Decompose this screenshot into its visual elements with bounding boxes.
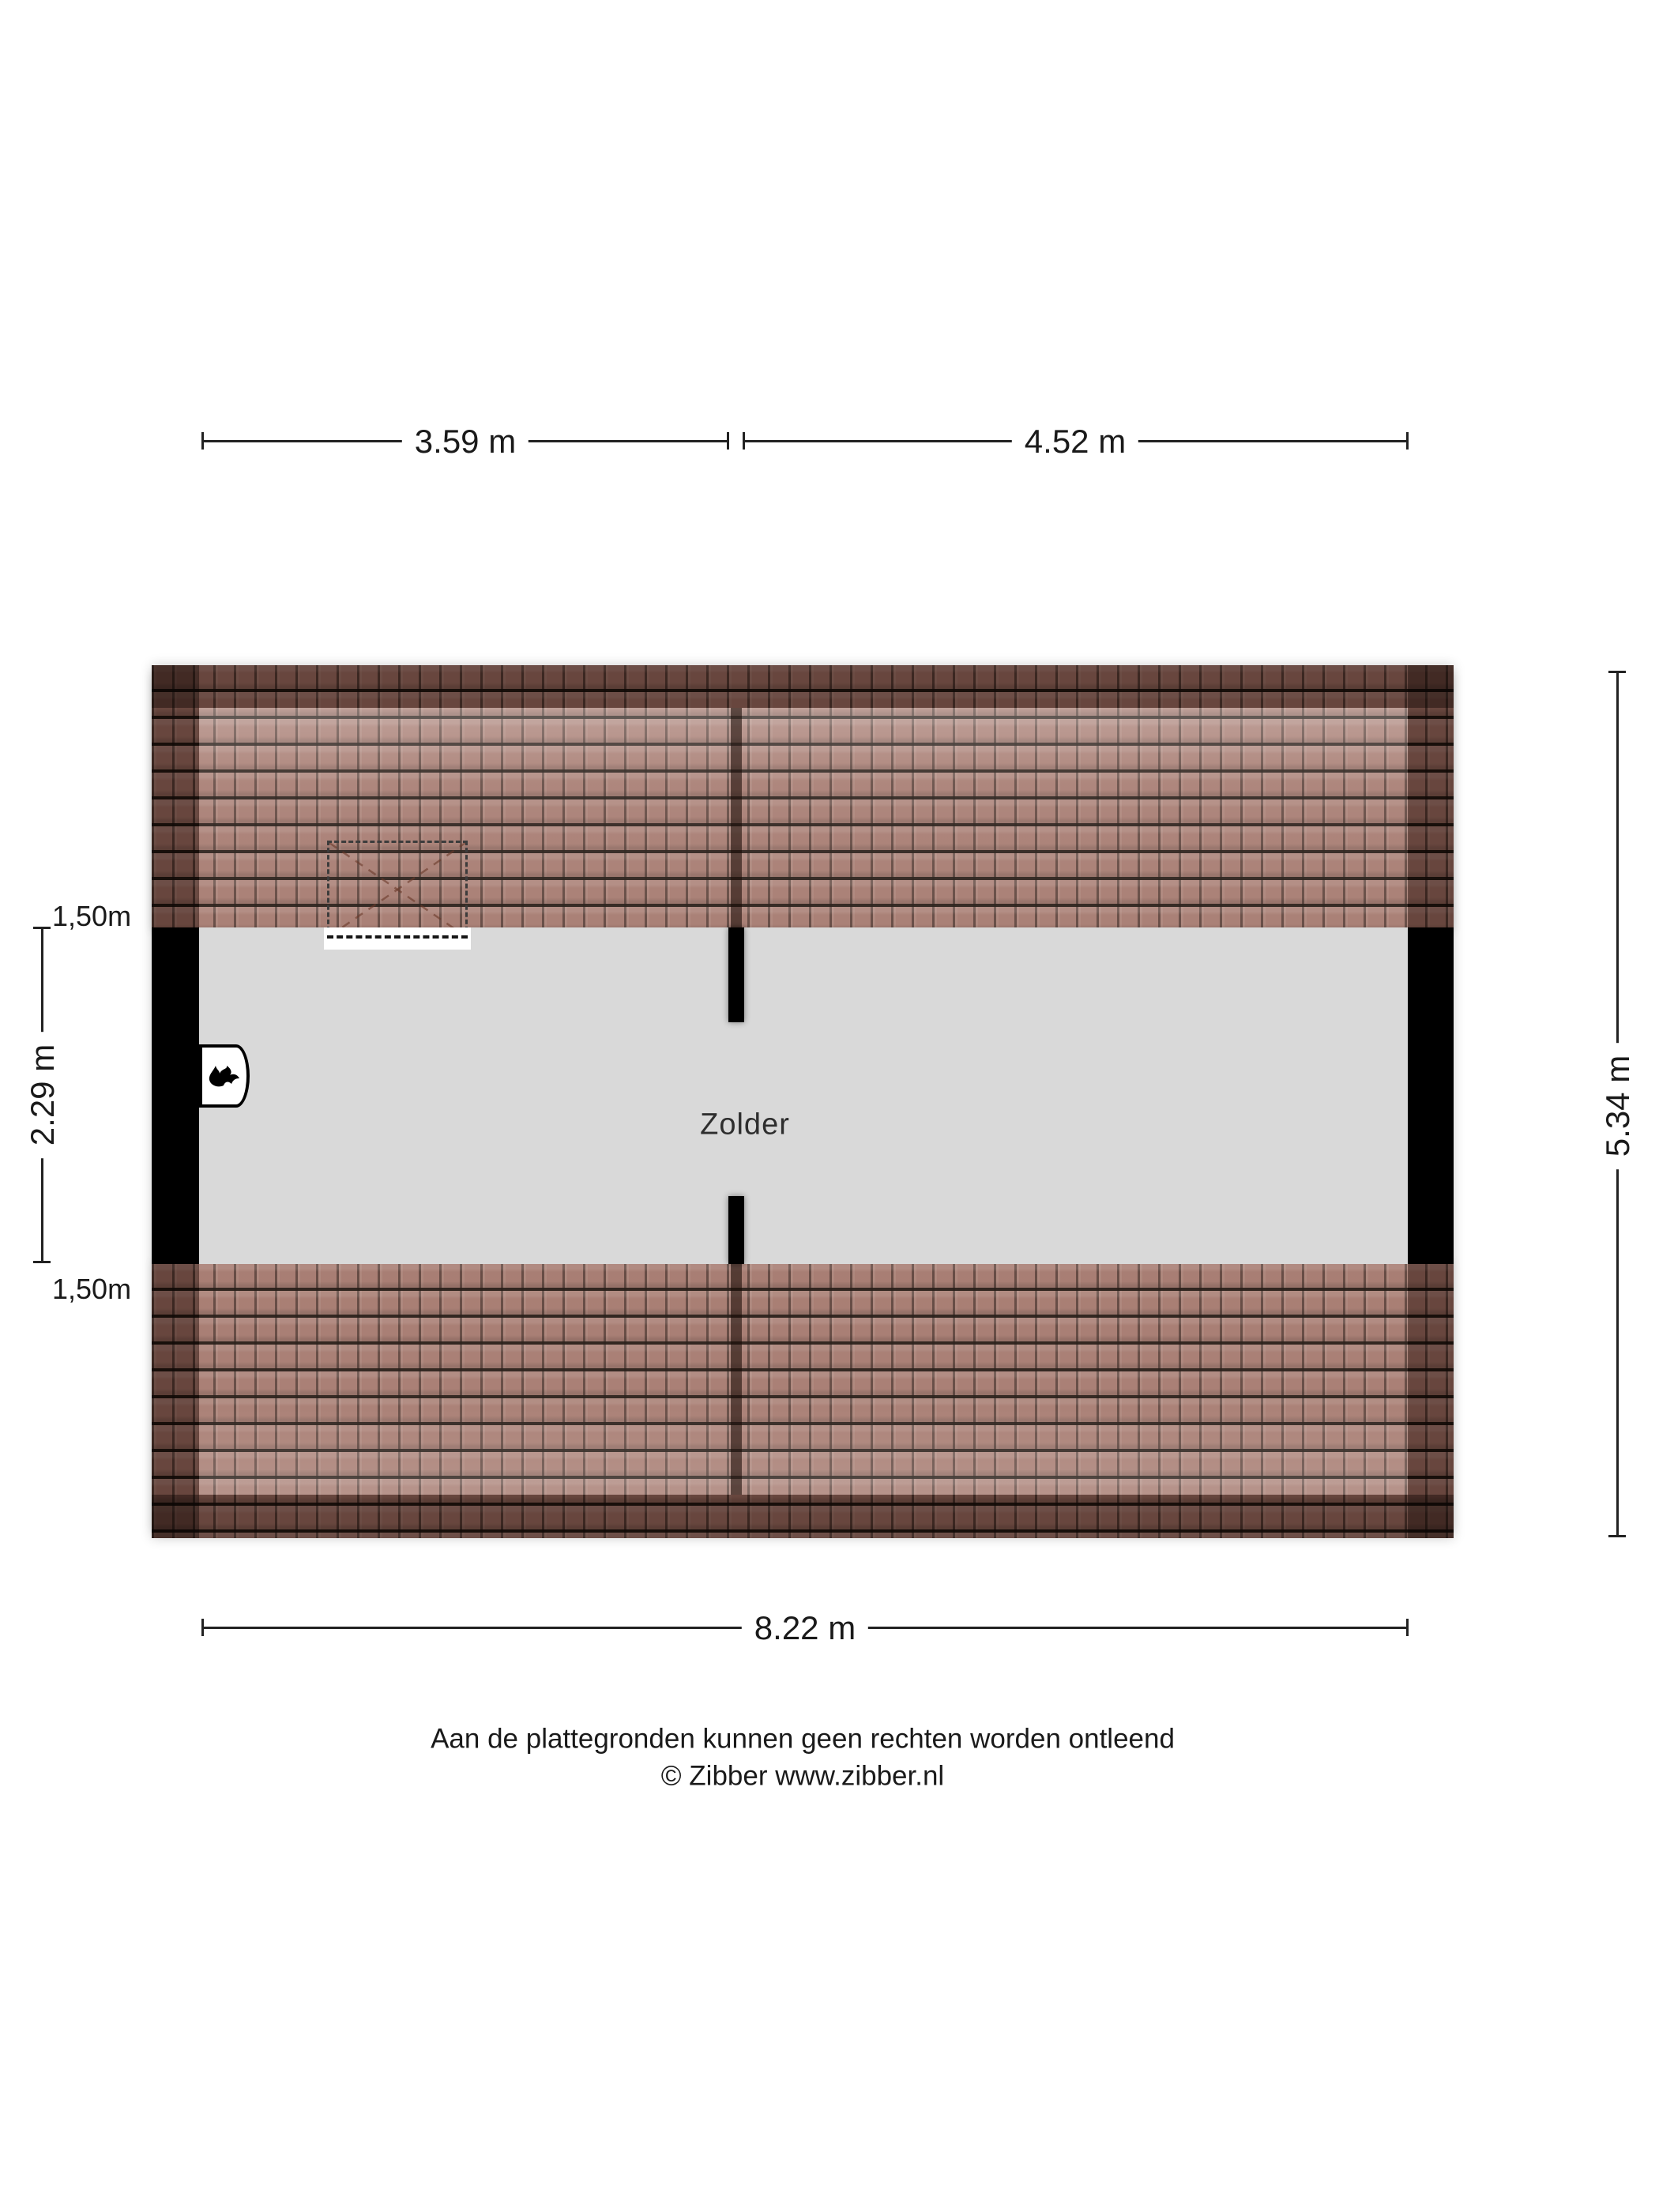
roof-window-apron <box>324 927 471 950</box>
dimension-tick <box>33 927 51 929</box>
dimension-label-left-middle: 2.29 m <box>24 1032 61 1158</box>
roof-eave-edge <box>152 665 199 927</box>
roof-eave-edge <box>1408 1264 1454 1538</box>
dimension-tick <box>1406 1619 1409 1636</box>
floorplan-page: 3.59 m 4.52 m 1,50m 2.29 m 1,50m 5.34 m … <box>0 0 1659 2212</box>
room-label: Zolder <box>700 1108 790 1142</box>
dimension-tick <box>743 432 745 450</box>
attic-floorplan: Zolder <box>152 665 1454 1538</box>
dimension-tick <box>727 432 729 450</box>
roof-eave-edge <box>1408 665 1454 927</box>
dimension-label-bottom-total: 8.22 m <box>742 1610 868 1646</box>
roof-eave-edge <box>152 1495 1454 1538</box>
roof-eave-edge <box>152 665 1454 708</box>
footer-credit: © Zibber www.zibber.nl <box>661 1758 944 1794</box>
wall-stub-bottom <box>728 1196 744 1264</box>
wall-middle-through-roof-bottom <box>731 1264 742 1495</box>
dimension-tick <box>33 1261 51 1263</box>
flame-icon <box>208 1063 241 1089</box>
roof-eave-edge <box>152 1264 199 1538</box>
wall-stub-top <box>728 927 744 1022</box>
dimension-tick <box>201 432 204 450</box>
roof-window-x-icon <box>329 843 465 936</box>
dimension-label-right-total: 5.34 m <box>1600 1043 1636 1169</box>
footer-disclaimer: Aan de plattegronden kunnen geen rechten… <box>431 1721 1175 1757</box>
roof-highlight <box>199 1264 1408 1495</box>
roof-band-bottom <box>152 1264 1454 1538</box>
dashed-roof-window <box>327 841 468 939</box>
wall-right <box>1408 927 1454 1264</box>
roof-window-dashed-edge <box>327 935 468 939</box>
wall-middle-through-roof-top <box>731 708 742 927</box>
dimension-label-top-right: 4.52 m <box>1012 423 1138 460</box>
dimension-tick <box>1608 671 1626 673</box>
dimension-label-left-upper-band: 1,50m <box>52 902 131 931</box>
attic-floor <box>152 927 1454 1264</box>
boiler-unit <box>199 1044 250 1108</box>
dimension-label-top-left: 3.59 m <box>402 423 529 460</box>
wall-left <box>152 927 199 1264</box>
dimension-label-left-lower-band: 1,50m <box>52 1275 131 1303</box>
dimension-tick <box>201 1619 204 1636</box>
dimension-tick <box>1608 1535 1626 1537</box>
dimension-tick <box>1406 432 1409 450</box>
